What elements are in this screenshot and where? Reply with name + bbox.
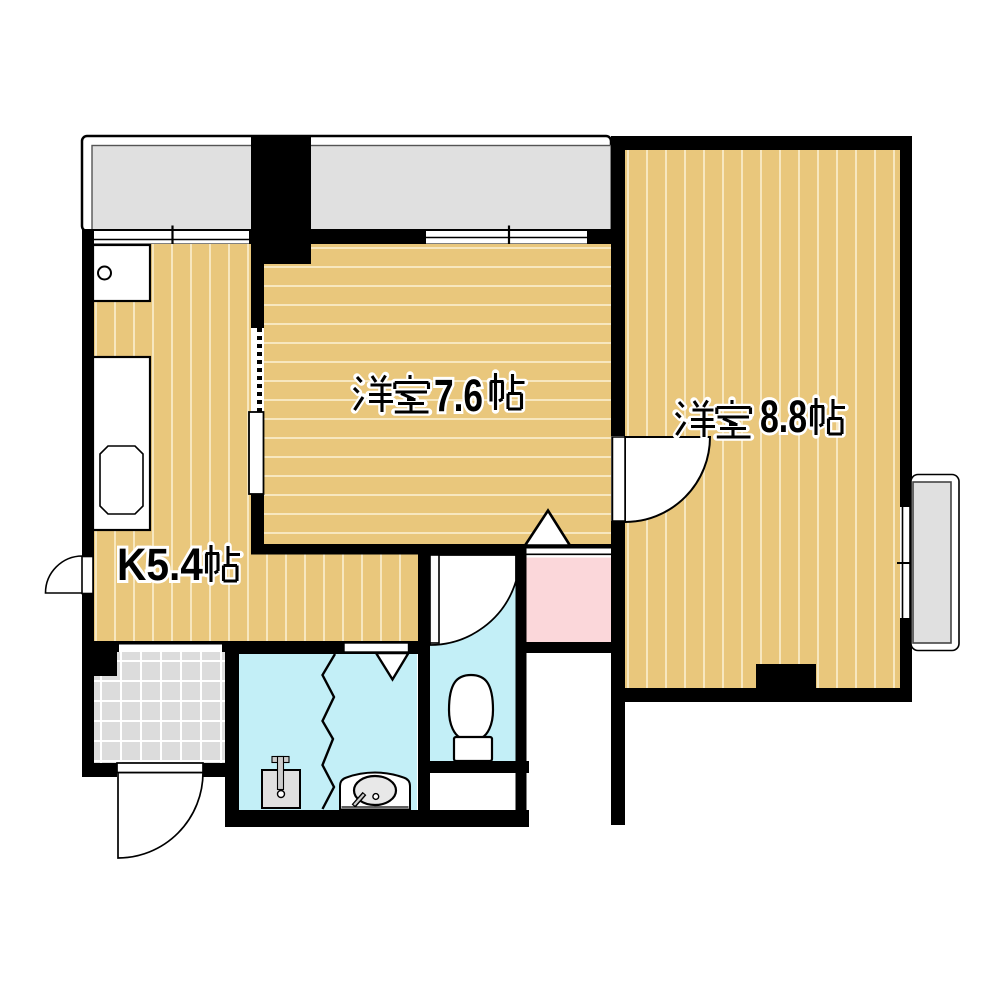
svg-text:7.6: 7.6 [434, 370, 483, 421]
svg-text:8.8: 8.8 [760, 391, 807, 442]
svg-text:K5.4: K5.4 [117, 539, 203, 590]
